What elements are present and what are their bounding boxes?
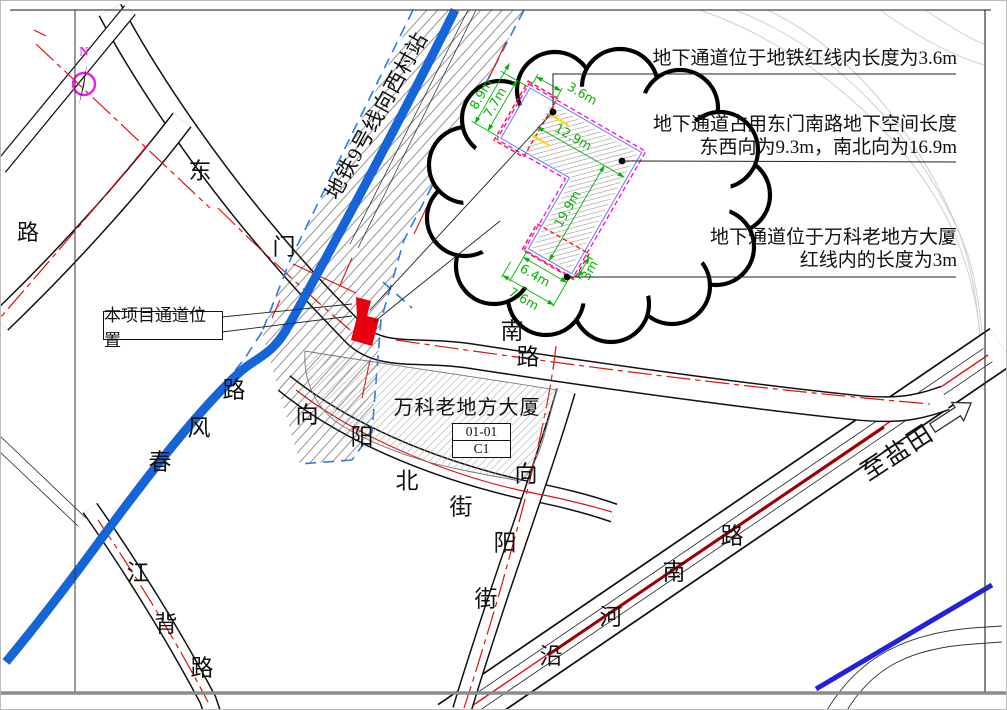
annotation-building-redline-line1: 地下通道位于万科老地方大厦 — [710, 226, 957, 249]
road-label-dong: 东 — [189, 160, 212, 183]
road-label-yang2: 阳 — [494, 532, 517, 555]
road-label-yang1: 阳 — [351, 426, 374, 449]
road-label-jie2: 街 — [475, 588, 498, 611]
annotation-metro-redline-text: 地下通道位于地铁红线内长度为3.6m — [652, 47, 957, 70]
site-plan-drawing: 8.9m 7.7m 3.6m 12.9m 19.9m 6.4m 7.6m 3m — [0, 0, 1007, 710]
road-label-he: 河 — [600, 606, 623, 629]
annotation-road-space: 地下通道占用东门南路地下空间长度 东西向为9.3m，南北向为16.9m — [653, 113, 957, 159]
road-label-jiang: 江 — [127, 562, 150, 585]
road-label-beijie-jie: 街 — [450, 496, 473, 519]
passage-location-callout: 本项目通道位置 — [103, 311, 223, 340]
parcel-number: 01-01 — [453, 424, 510, 440]
road-label-bei: 背 — [155, 613, 178, 636]
road-label-chun: 春 — [149, 451, 172, 474]
road-label-nan: 南 — [501, 320, 524, 343]
drawing-linework: 8.9m 7.7m 3.6m 12.9m 19.9m 6.4m 7.6m 3m — [0, 0, 1007, 710]
road-west-branch — [0, 10, 182, 322]
compass-north-label: N — [79, 45, 88, 58]
road-label-yan: 沿 — [540, 645, 563, 668]
road-label-feng: 风 — [188, 417, 211, 440]
road-label-henan: 南 — [663, 561, 686, 584]
road-jiangbei-lu — [0, 436, 212, 710]
road-label-jiangbei-lu: 路 — [191, 657, 214, 680]
road-label-xiang2: 向 — [515, 463, 538, 486]
road-label-chunfeng-lu: 路 — [223, 379, 246, 402]
building-name: 万科老地方大厦 — [394, 398, 541, 418]
road-label-men: 门 — [273, 236, 296, 259]
road-label-henan-lu: 路 — [721, 525, 744, 548]
annotation-road-space-line2: 东西向为9.3m，南北向为16.9m — [653, 136, 957, 159]
passage-location-label: 本项目通道位置 — [104, 301, 222, 351]
corner-rail-line — [816, 585, 992, 689]
annotation-building-redline: 地下通道位于万科老地方大厦 红线内的长度为3m — [710, 226, 957, 272]
parcel-block: C1 — [453, 440, 510, 457]
road-label-beijie-bei: 北 — [396, 470, 419, 493]
road-label-west-lu: 路 — [17, 222, 39, 244]
road-label-xiang1: 向 — [296, 404, 319, 427]
annotation-building-redline-line2: 红线内的长度为3m — [710, 249, 957, 272]
parcel-number-box: 01-01 C1 — [452, 423, 511, 458]
annotation-metro-redline: 地下通道位于地铁红线内长度为3.6m — [652, 47, 957, 70]
annotation-road-space-line1: 地下通道占用东门南路地下空间长度 — [653, 113, 957, 136]
road-label-lu: 路 — [517, 346, 540, 369]
